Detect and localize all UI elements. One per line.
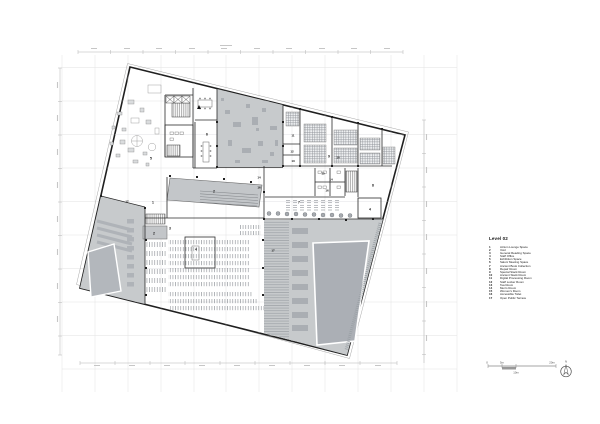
room-label: 11 bbox=[291, 134, 295, 138]
room-label: 17 bbox=[125, 200, 129, 204]
legend-item: 17Open Public Terrace bbox=[489, 297, 597, 300]
room-label: 17 bbox=[271, 249, 275, 253]
floor-plan: 5 6 1 2 2 3 4 4 7 8 9 10 11 12 13 14 16 … bbox=[0, 0, 600, 424]
room-label: 2 bbox=[153, 232, 155, 236]
scale-label-5m: 5m bbox=[500, 361, 505, 365]
room-label: 13 bbox=[291, 159, 295, 163]
terrace-ramp-strip bbox=[264, 220, 289, 339]
north-label: N bbox=[565, 360, 567, 364]
room-label: 6 bbox=[206, 133, 208, 137]
room-label: 14 bbox=[329, 178, 333, 182]
room-label: 3 bbox=[169, 227, 171, 231]
legend-panel: Level 02 1Atrium Lounge Space 2Void 3Gen… bbox=[489, 236, 597, 300]
room-label: 4 bbox=[369, 208, 371, 212]
legend-item-label: Open Public Terrace bbox=[495, 297, 526, 300]
terrace-top bbox=[217, 89, 283, 167]
room-label: 10 bbox=[336, 156, 340, 160]
room-label: 4 bbox=[195, 248, 197, 252]
terrace-left bbox=[80, 196, 145, 304]
scale-label-10m: 10m bbox=[513, 371, 519, 375]
legend-title: Level 02 bbox=[489, 236, 597, 241]
north-arrow-icon: N bbox=[561, 360, 572, 377]
room-label: 15 bbox=[321, 172, 325, 176]
scale-label-0: 0 bbox=[486, 361, 488, 365]
scale-bar: 0 5m 10m 20m bbox=[486, 361, 556, 375]
room-label: 1 bbox=[152, 201, 154, 205]
room-label: 2 bbox=[213, 190, 215, 194]
scale-label-20m: 20m bbox=[549, 361, 555, 365]
room-label: 14 bbox=[257, 176, 261, 180]
room-label: 8 bbox=[372, 184, 374, 188]
room-label: 12 bbox=[290, 150, 294, 154]
room-label: 7 bbox=[298, 201, 300, 205]
room-label: 5 bbox=[150, 157, 152, 161]
room-label: 9 bbox=[328, 155, 330, 159]
room-label: 16 bbox=[257, 186, 261, 190]
drawing-sheet: 5 6 1 2 2 3 4 4 7 8 9 10 11 12 13 14 16 … bbox=[0, 0, 600, 424]
room-label: 16 bbox=[325, 189, 329, 193]
